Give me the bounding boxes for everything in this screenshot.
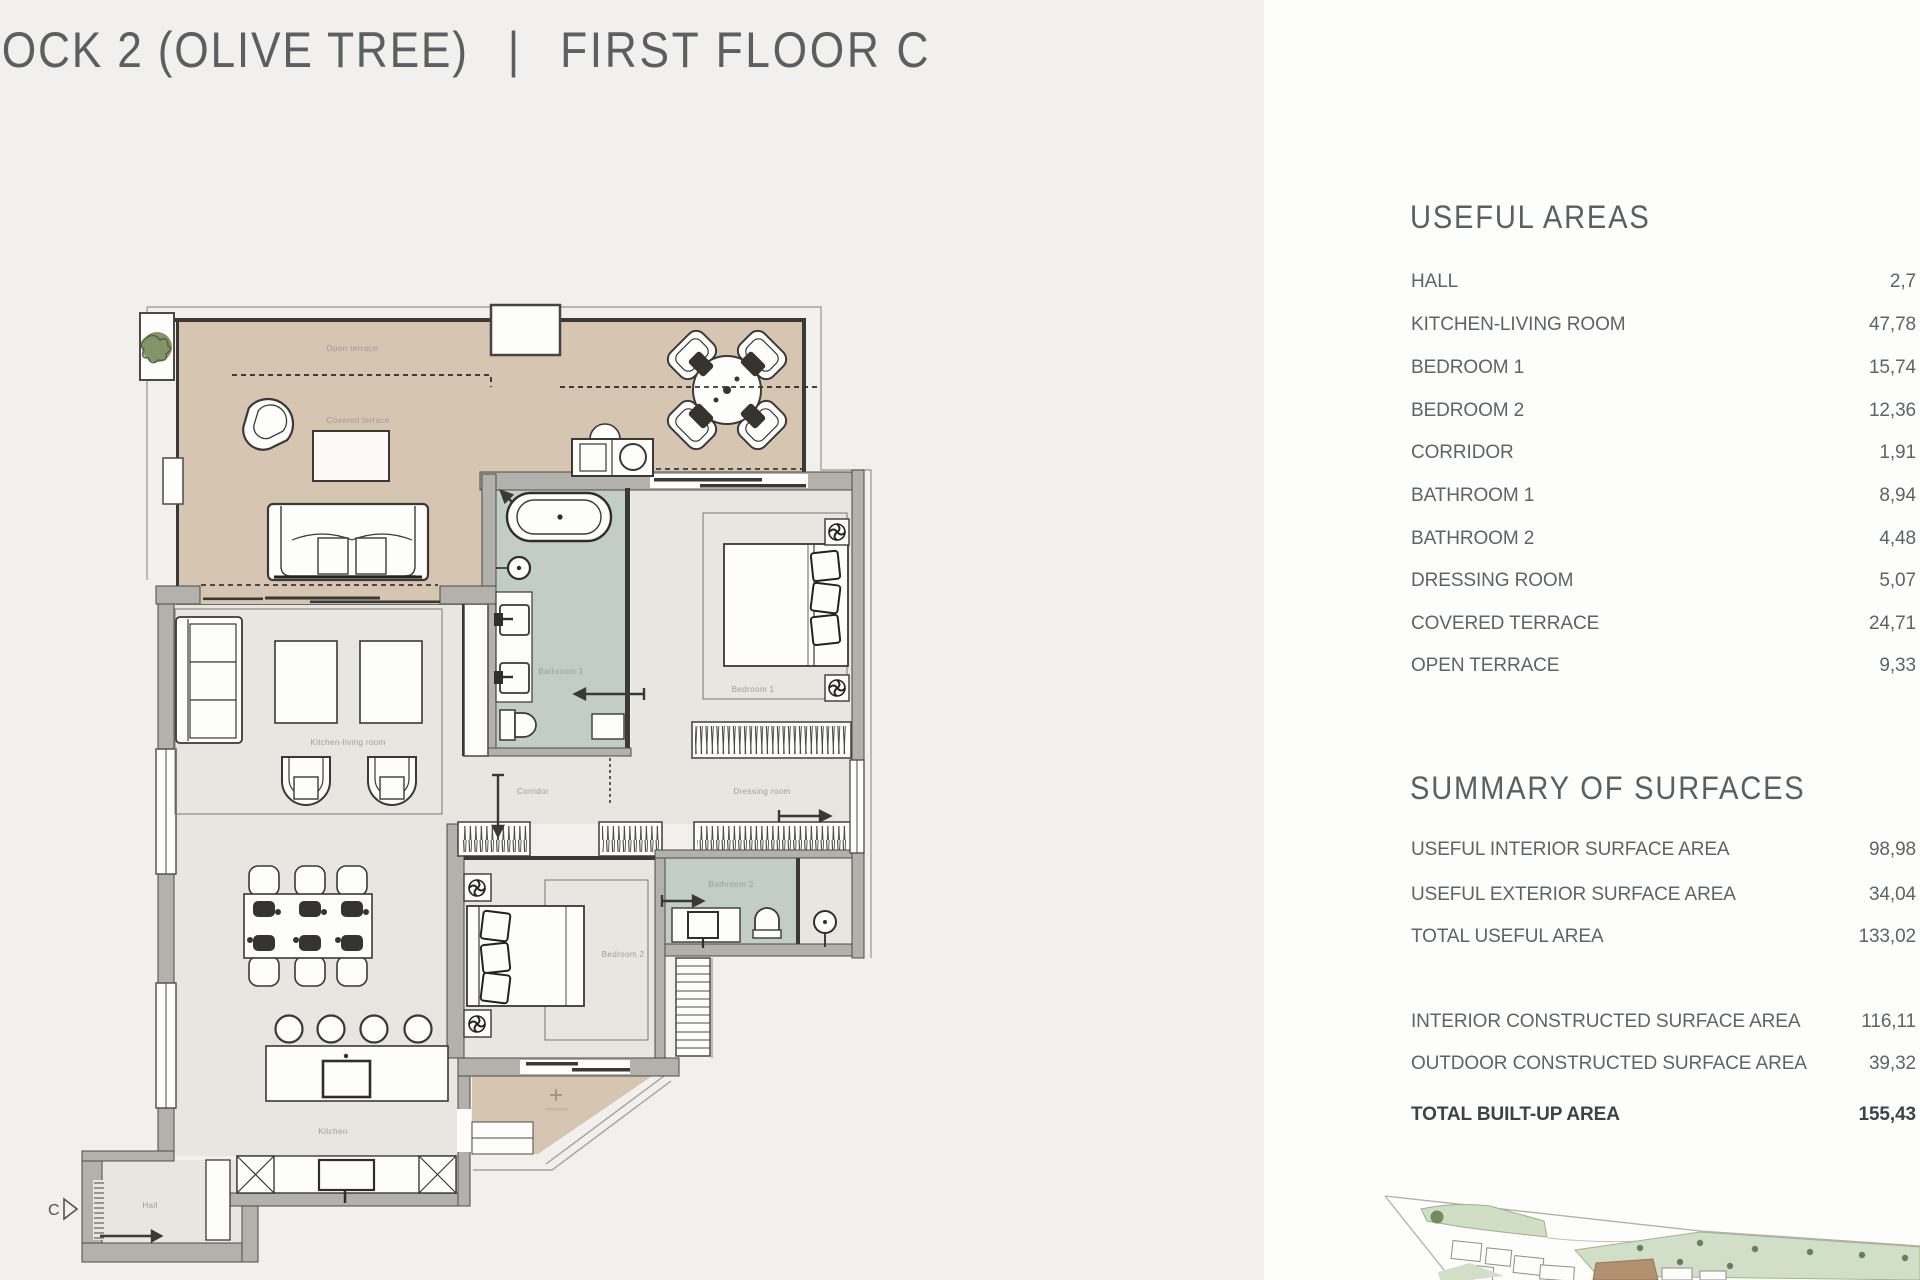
svg-text:Open terrace: Open terrace [326, 344, 378, 353]
svg-text:Hall: Hall [142, 1201, 157, 1210]
svg-text:Bedroom 2: Bedroom 2 [602, 950, 645, 959]
svg-text:Corridor: Corridor [517, 787, 549, 796]
svg-text:Dressing room: Dressing room [733, 787, 790, 796]
svg-text:Kitchen-living room: Kitchen-living room [310, 738, 385, 747]
svg-text:Kitchen: Kitchen [318, 1127, 348, 1136]
svg-text:C: C [48, 1202, 60, 1219]
svg-text:Bathroom 1: Bathroom 1 [538, 667, 583, 676]
svg-text:Bathroom 2: Bathroom 2 [708, 880, 753, 889]
svg-text:Covered terrace: Covered terrace [326, 416, 389, 425]
svg-text:Bedroom 1: Bedroom 1 [732, 685, 775, 694]
